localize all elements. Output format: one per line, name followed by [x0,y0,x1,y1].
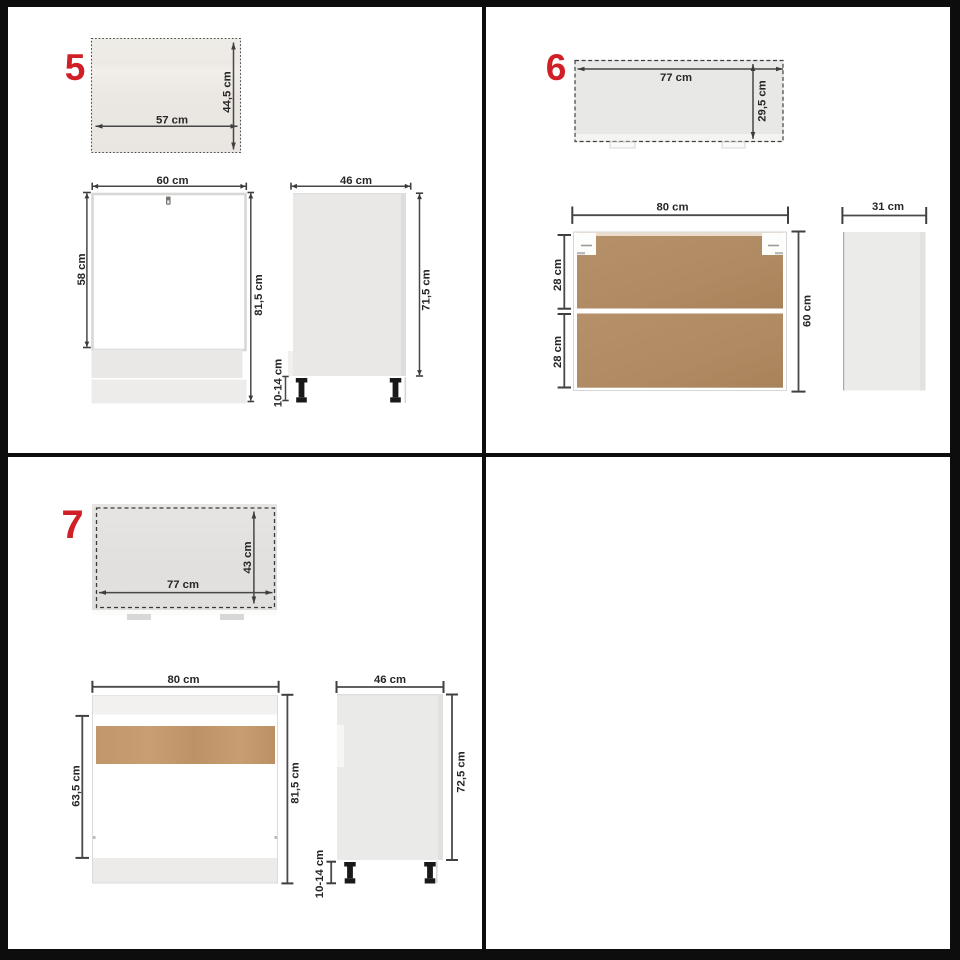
svg-text:81,5 cm: 81,5 cm [253,274,265,315]
svg-text:46 cm: 46 cm [374,674,406,686]
svg-text:6: 6 [546,47,567,88]
svg-text:28 cm: 28 cm [552,336,564,368]
svg-text:10-14 cm: 10-14 cm [273,359,285,407]
svg-text:29,5 cm: 29,5 cm [757,80,769,121]
svg-text:43 cm: 43 cm [242,541,254,573]
svg-text:58 cm: 58 cm [76,253,88,285]
svg-text:7: 7 [61,503,83,547]
svg-text:60 cm: 60 cm [156,175,188,187]
svg-text:71,5 cm: 71,5 cm [421,269,433,310]
svg-text:81,5 cm: 81,5 cm [289,762,301,803]
svg-text:46 cm: 46 cm [340,175,372,187]
svg-text:63,5 cm: 63,5 cm [70,765,82,806]
svg-text:77 cm: 77 cm [167,579,199,591]
svg-text:5: 5 [65,47,86,88]
svg-text:28 cm: 28 cm [552,259,564,291]
svg-text:31 cm: 31 cm [872,201,904,213]
svg-text:10-14 cm: 10-14 cm [314,850,326,898]
svg-text:80 cm: 80 cm [656,202,688,214]
svg-text:60 cm: 60 cm [802,295,814,327]
svg-text:72,5 cm: 72,5 cm [456,751,468,792]
svg-text:80 cm: 80 cm [167,674,199,686]
svg-text:57 cm: 57 cm [156,115,188,127]
svg-text:77 cm: 77 cm [660,72,692,84]
svg-text:44,5 cm: 44,5 cm [222,71,234,112]
